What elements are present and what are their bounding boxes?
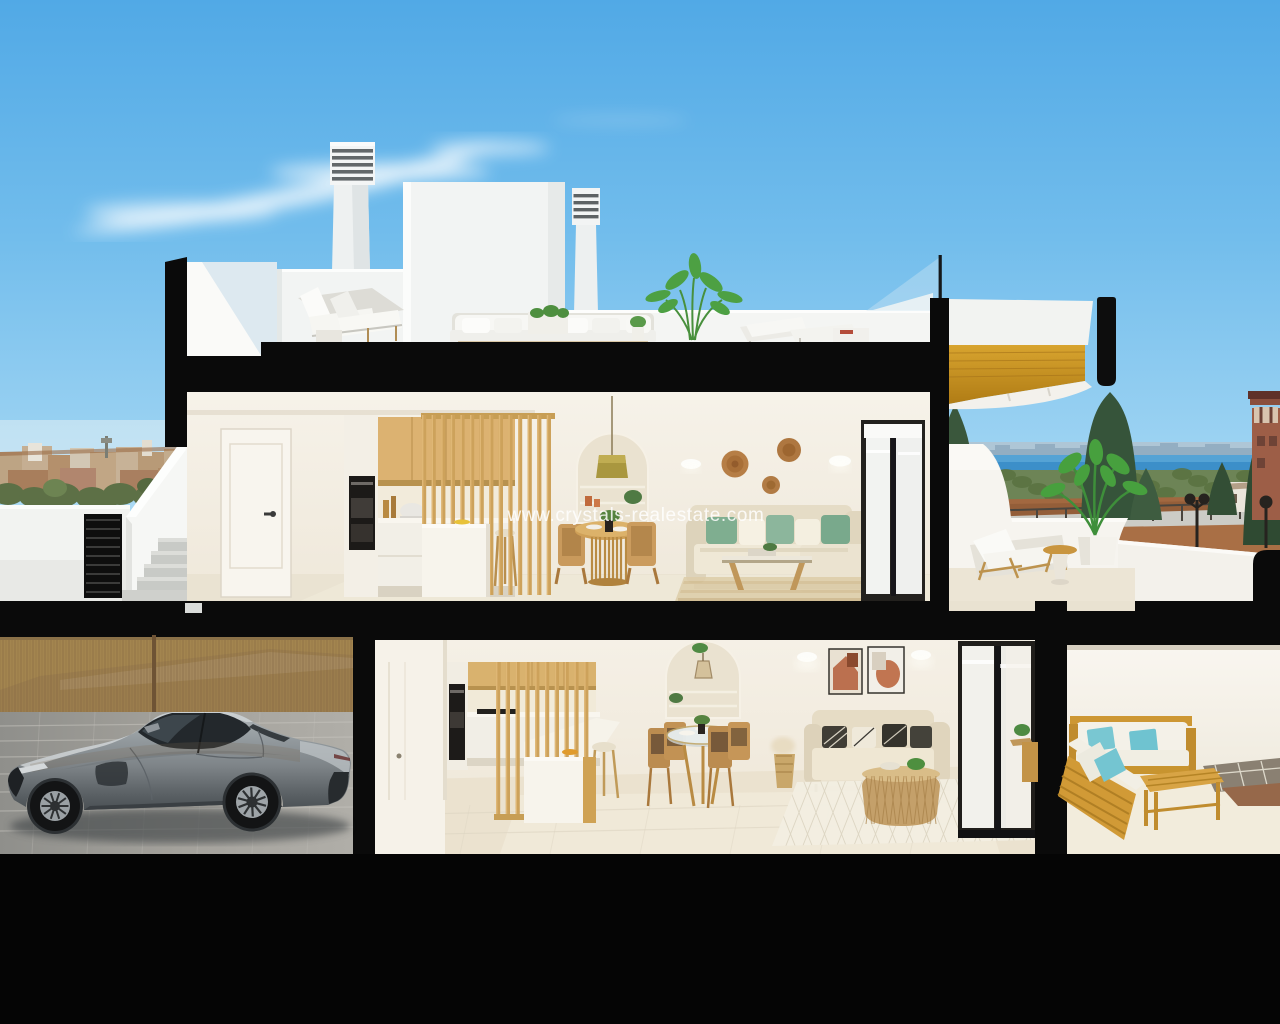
svg-text:www.crystals-realestate.com: www.crystals-realestate.com xyxy=(507,505,765,526)
